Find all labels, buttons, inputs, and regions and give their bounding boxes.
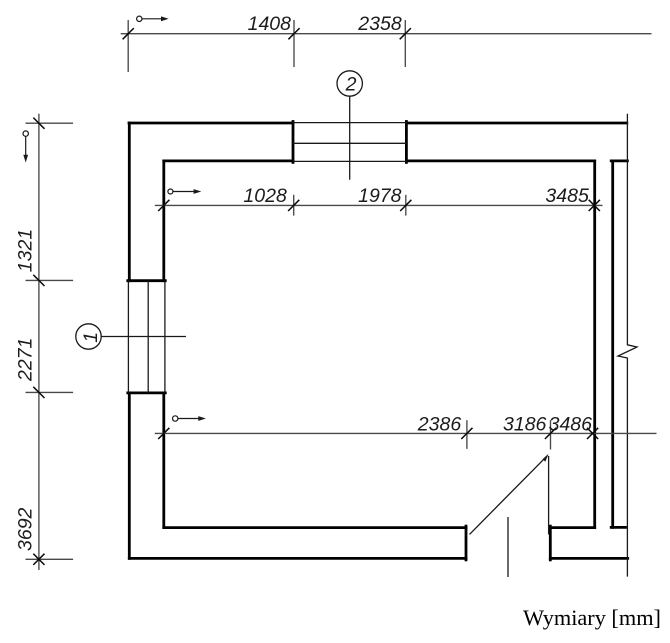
svg-text:1: 1 bbox=[80, 332, 102, 343]
svg-text:3486: 3486 bbox=[549, 414, 593, 436]
svg-text:2358: 2358 bbox=[357, 13, 402, 35]
svg-text:3186: 3186 bbox=[503, 414, 547, 436]
svg-text:1978: 1978 bbox=[358, 185, 402, 207]
svg-text:Wymiary [mm]: Wymiary [mm] bbox=[523, 605, 661, 630]
svg-text:2386: 2386 bbox=[417, 414, 462, 436]
svg-text:3485: 3485 bbox=[545, 185, 589, 207]
svg-text:3692: 3692 bbox=[15, 507, 37, 551]
svg-text:1321: 1321 bbox=[15, 229, 37, 272]
svg-text:1408: 1408 bbox=[248, 13, 292, 35]
svg-text:2: 2 bbox=[345, 74, 357, 96]
svg-text:1028: 1028 bbox=[243, 185, 287, 207]
svg-text:2271: 2271 bbox=[15, 338, 37, 382]
